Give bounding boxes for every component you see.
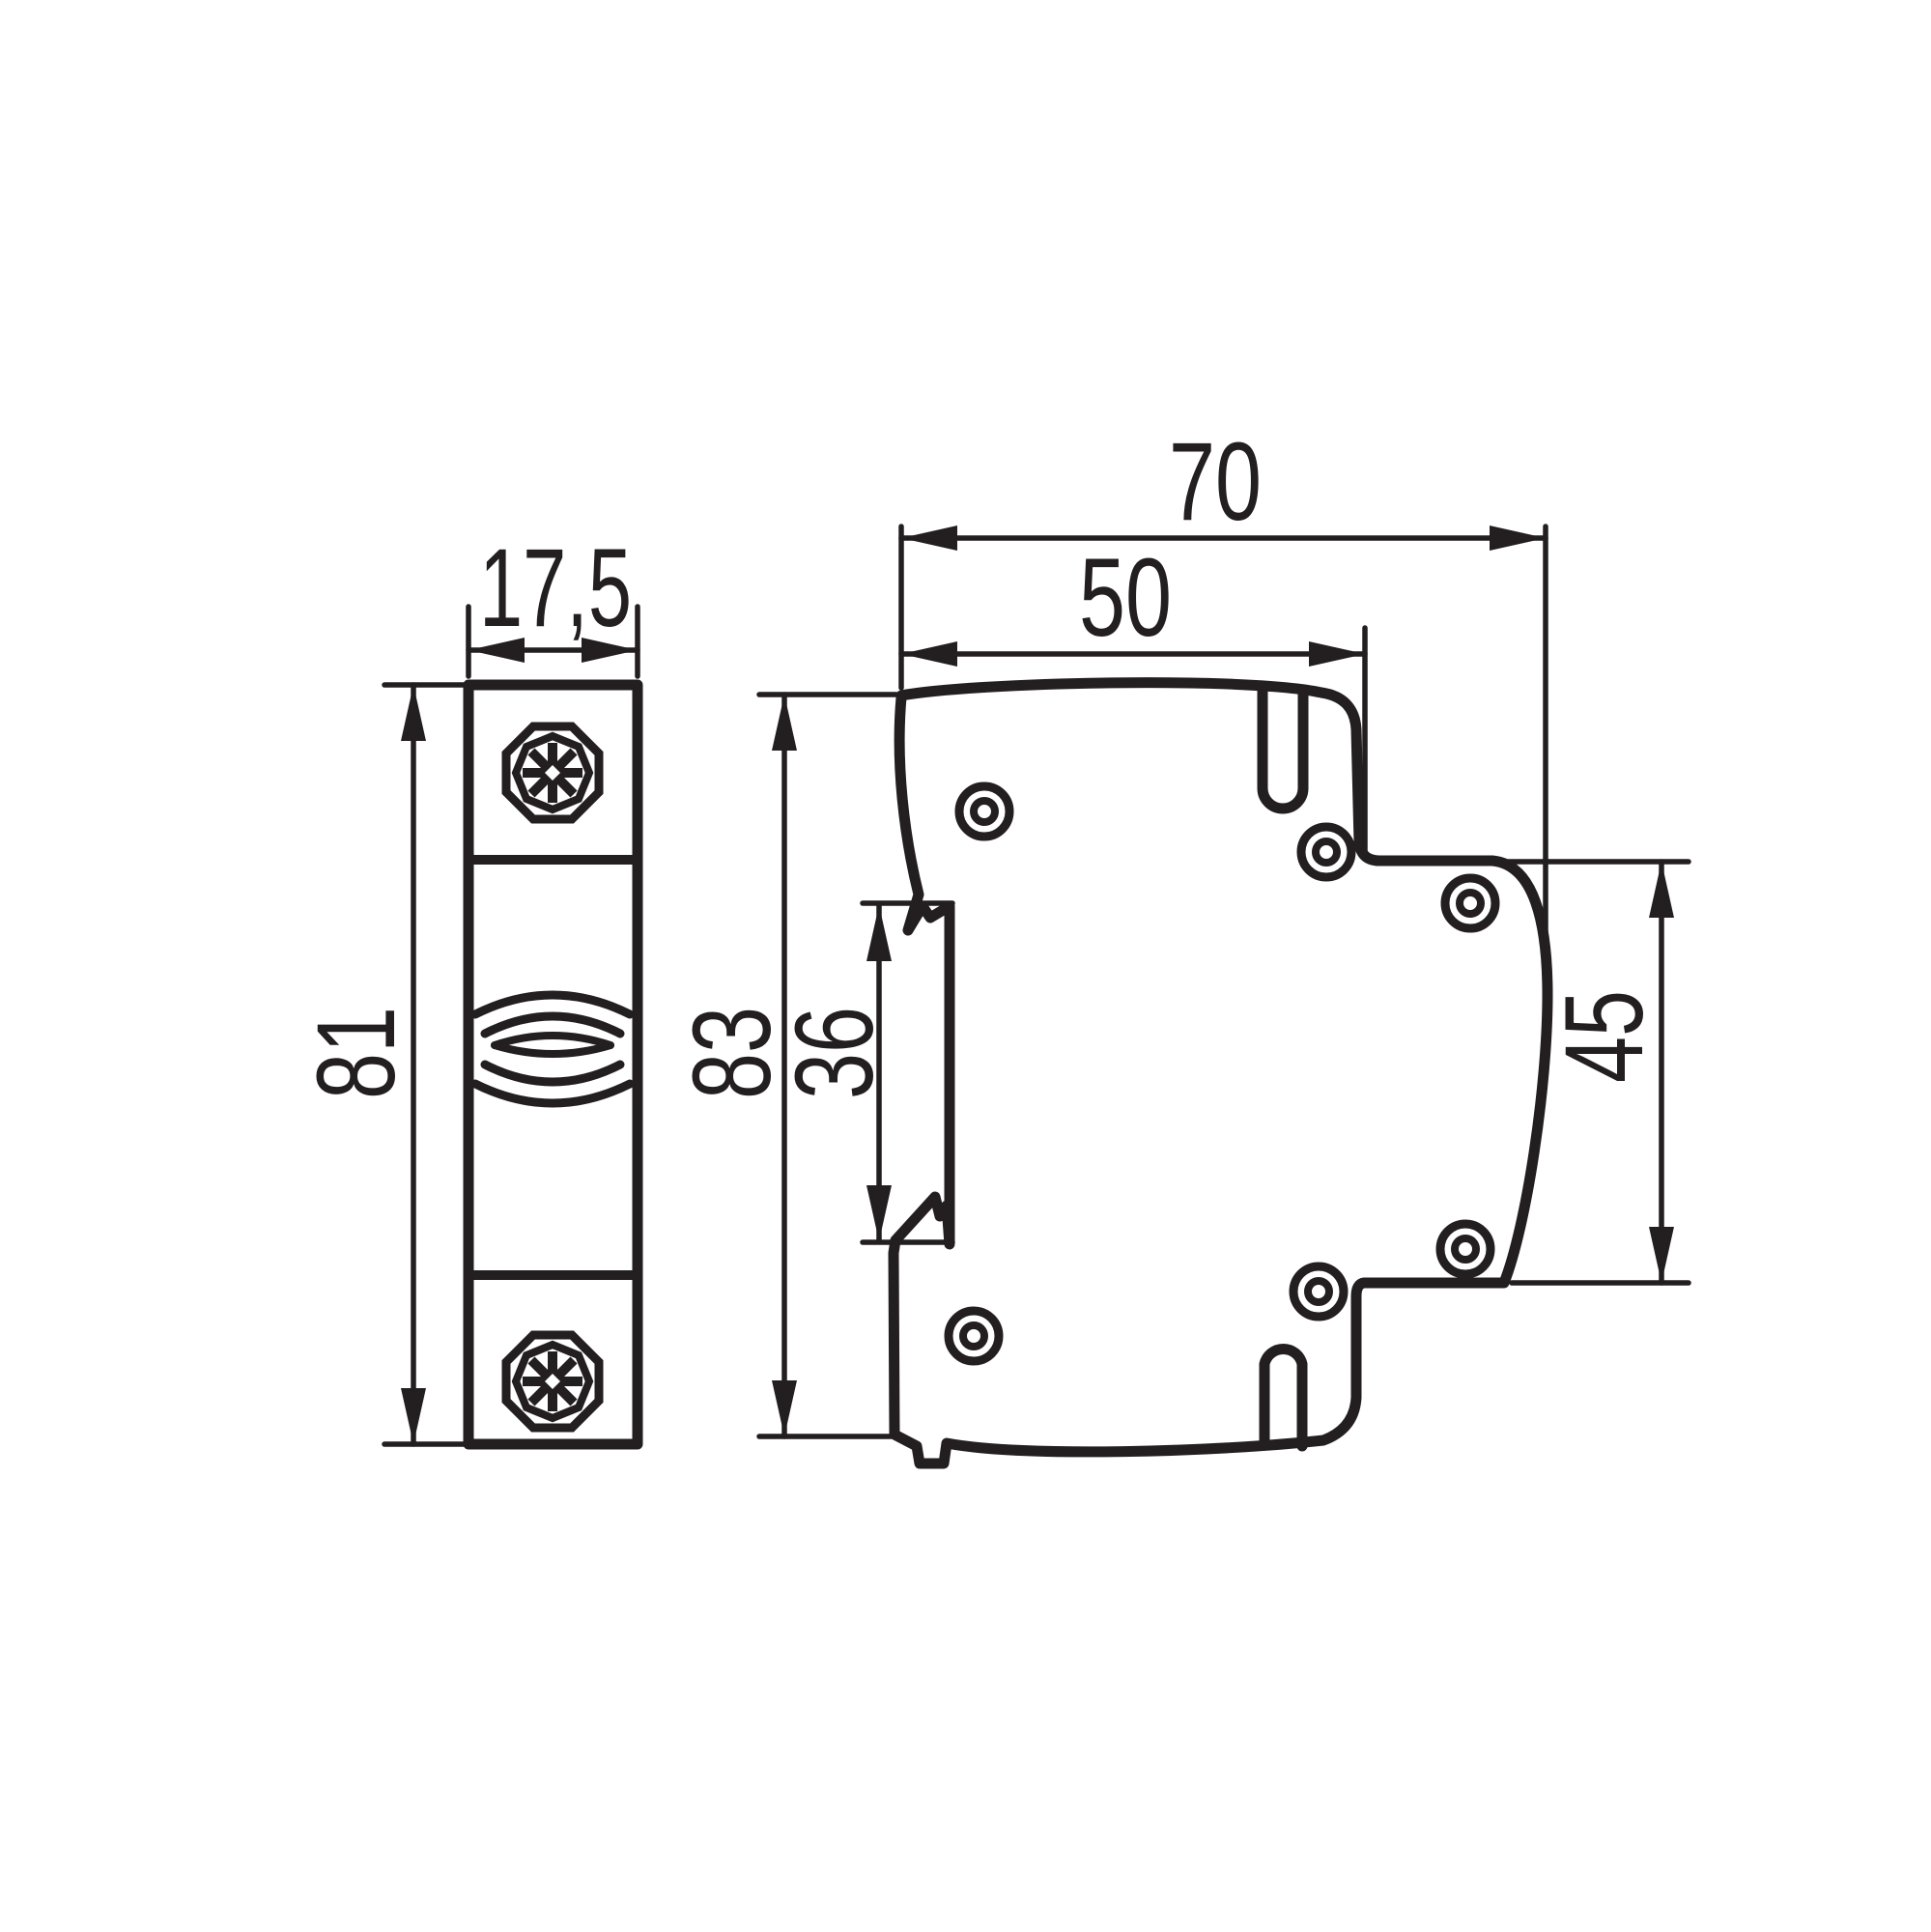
dim-label-front-height: 81 xyxy=(295,1007,418,1099)
rivet-step-lower xyxy=(1293,1266,1344,1317)
rivet-top-left xyxy=(959,786,1009,837)
dim-side-rear-height: 45 xyxy=(1505,862,1689,1283)
drawing-canvas: 17,5 81 70 xyxy=(0,0,1931,1932)
rivet-step-upper xyxy=(1301,827,1351,877)
side-view: 70 50 83 36 45 xyxy=(670,420,1689,1463)
rivet-rear-lower xyxy=(1440,1224,1491,1274)
side-slot-bottom xyxy=(1264,1349,1302,1446)
rivet-bottom-left xyxy=(949,1311,999,1361)
screw-icon-bottom xyxy=(506,1335,599,1428)
dim-label-front-width: 17,5 xyxy=(479,526,632,650)
technical-drawing: 17,5 81 70 xyxy=(0,0,1931,1932)
dim-label-side-rail-recess: 36 xyxy=(773,1007,896,1099)
screw-icon-top xyxy=(506,726,599,819)
dim-side-rail-recess: 36 xyxy=(773,903,952,1242)
dim-front-width: 17,5 xyxy=(469,526,638,676)
front-view: 17,5 81 xyxy=(295,526,638,1444)
dim-label-side-upper-width: 50 xyxy=(1079,536,1172,660)
rivet-rear-upper xyxy=(1445,878,1495,928)
side-slot-top xyxy=(1263,690,1303,809)
dim-label-side-total-width: 70 xyxy=(1169,420,1262,544)
dim-label-side-rear-height: 45 xyxy=(1543,990,1666,1083)
dim-front-height: 81 xyxy=(295,685,465,1444)
bell-icon xyxy=(475,995,630,1103)
